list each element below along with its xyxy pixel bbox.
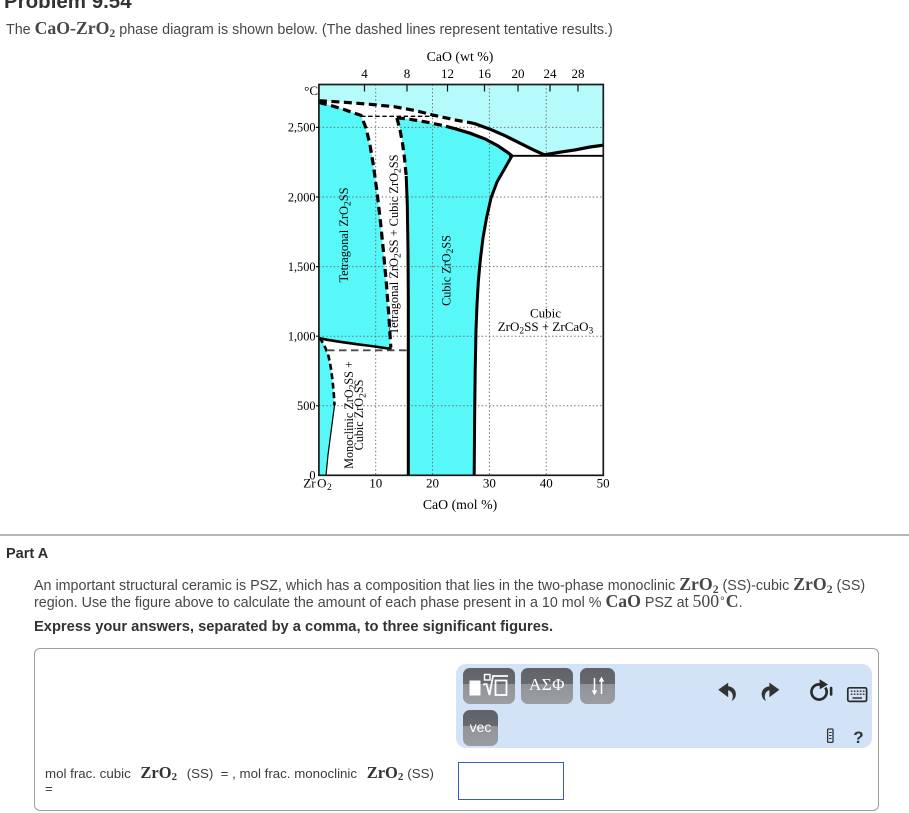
svg-text:24: 24 xyxy=(544,66,558,81)
svg-text:30: 30 xyxy=(483,476,496,491)
svg-text:28: 28 xyxy=(572,66,585,81)
svg-text:12: 12 xyxy=(441,66,454,81)
svg-text:ZrO2SS + ZrCaO3: ZrO2SS + ZrCaO3 xyxy=(498,319,594,337)
svg-text:2,000: 2,000 xyxy=(288,190,316,204)
svg-text:50: 50 xyxy=(597,476,610,491)
svg-text:4: 4 xyxy=(361,66,368,81)
svg-text:Cubic ZrO2SS: Cubic ZrO2SS xyxy=(352,379,369,450)
svg-text:2,500: 2,500 xyxy=(288,121,316,135)
svg-text:°C: °C xyxy=(304,83,318,98)
svg-text:CaO (wt %): CaO (wt %) xyxy=(427,49,494,65)
svg-text:?: ? xyxy=(853,728,863,747)
svg-text:CaO (mol %): CaO (mol %) xyxy=(423,497,497,513)
svg-text:1,000: 1,000 xyxy=(288,329,316,343)
svg-text:40: 40 xyxy=(540,476,553,491)
svg-text:20: 20 xyxy=(426,476,439,491)
svg-text:Tetragonal ZrO2SS + Cubic ZrO2: Tetragonal ZrO2SS + Cubic ZrO2SS xyxy=(387,154,404,334)
svg-text:20: 20 xyxy=(512,66,525,81)
svg-text:1,500: 1,500 xyxy=(288,260,316,274)
svg-text:500: 500 xyxy=(297,399,315,413)
svg-text:ZrO2: ZrO2 xyxy=(303,476,332,494)
svg-text:10: 10 xyxy=(369,476,382,491)
svg-text:16: 16 xyxy=(478,66,492,81)
svg-text:8: 8 xyxy=(404,66,411,81)
